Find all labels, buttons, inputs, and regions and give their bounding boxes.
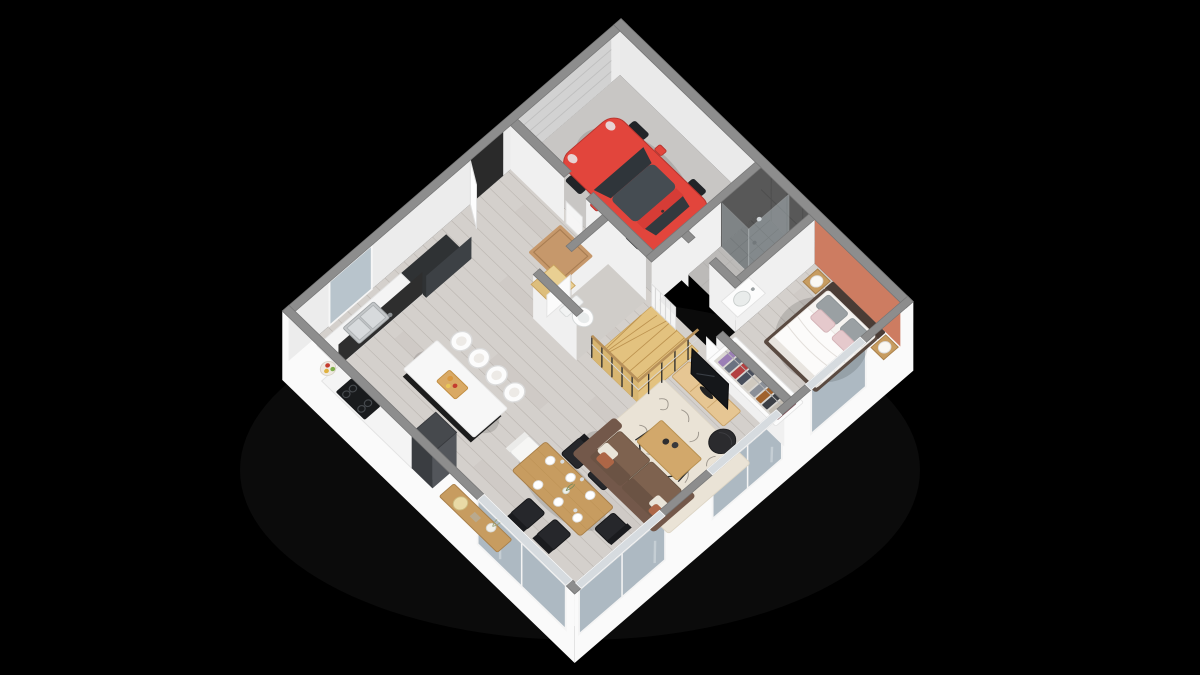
floor-plan-render xyxy=(0,0,1200,675)
floor-plan-stage xyxy=(0,0,1200,675)
